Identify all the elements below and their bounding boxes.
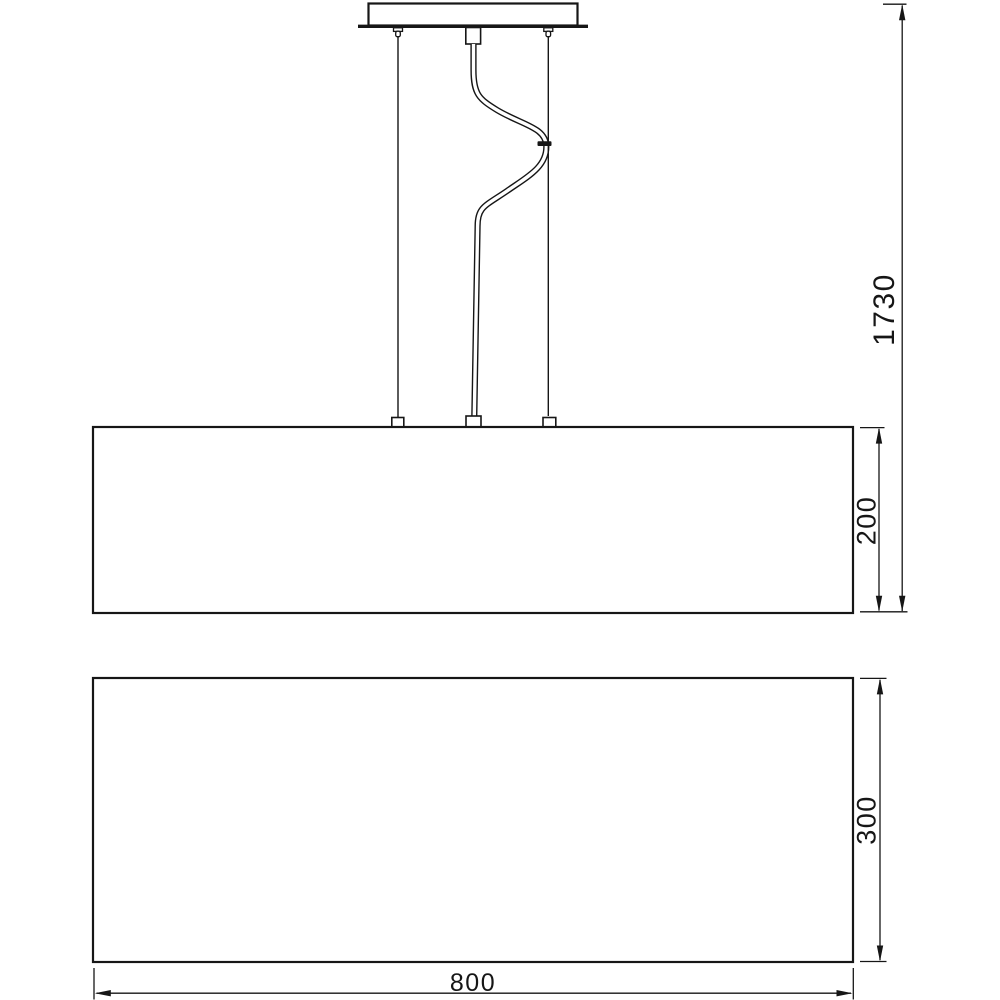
cord-gland [466, 28, 481, 45]
pendant-lamp-dimension-drawing: 1730 200 300 800 [0, 0, 1000, 1000]
arrow-left-icon [95, 990, 111, 996]
ceiling-canopy [358, 4, 588, 45]
cord-clamp [538, 141, 552, 146]
arrow-up-icon [877, 678, 883, 694]
shade-height-label: 200 [852, 496, 882, 546]
arrow-down-icon [877, 946, 883, 962]
left-cable-grommet [394, 28, 403, 37]
arrow-down-icon [899, 596, 905, 612]
canopy-body [369, 4, 578, 26]
dimension-width: 800 [94, 968, 853, 1000]
arrow-right-icon [837, 990, 853, 996]
shade-front-view [93, 416, 853, 613]
dimension-shade-height: 200 [852, 428, 908, 612]
lower-body-view [93, 678, 853, 962]
arrow-down-icon [876, 596, 882, 612]
overall-drop-label: 1730 [868, 273, 901, 346]
right-cable-grommet [544, 28, 553, 37]
dimension-lower-body-height: 300 [852, 678, 887, 961]
center-cord-fitting [466, 416, 481, 428]
width-label: 800 [450, 969, 496, 997]
power-cord [474, 44, 547, 416]
arrow-up-icon [899, 4, 905, 20]
technical-drawing-page: 1730 200 300 800 [0, 0, 1000, 1000]
shade-body [93, 427, 853, 613]
lower-body-height-label: 300 [852, 795, 882, 845]
arrow-up-icon [876, 428, 882, 444]
